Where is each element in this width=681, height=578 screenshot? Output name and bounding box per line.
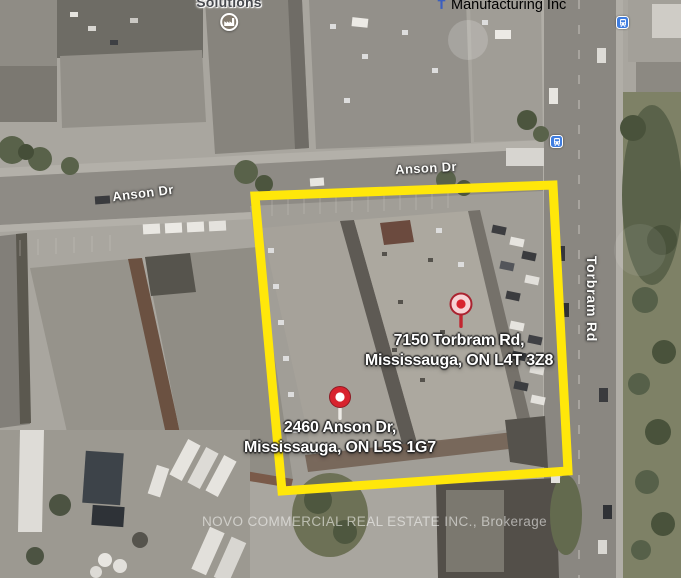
poi-solutions-label: Solutions (196, 0, 262, 10)
factory-icon (220, 13, 238, 31)
bus-stop-icon[interactable] (550, 135, 563, 148)
address-line-2: Mississauga, ON L4T 3Z8 (365, 351, 553, 371)
poi-manufacturing-label: Manufacturing Inc (451, 0, 566, 13)
bus-stop-icon[interactable] (616, 16, 629, 29)
satellite-map-canvas[interactable]: Anson Dr Anson Dr Torbram Rd Solutions M… (0, 0, 681, 578)
street-label-torbram-rd: Torbram Rd (584, 256, 600, 342)
address-line-2: Mississauga, ON L5S 1G7 (244, 438, 436, 458)
address-line-1: 7150 Torbram Rd, (365, 331, 553, 351)
street-label-anson-dr-east: Anson Dr (395, 159, 457, 177)
brokerage-watermark: NOVO COMMERCIAL REAL ESTATE INC., Broker… (202, 514, 547, 529)
poi-manufacturing[interactable]: Manufacturing Inc (436, 0, 566, 15)
address-line-1: 2460 Anson Dr, (244, 418, 436, 438)
cross-icon (436, 0, 447, 15)
pin-label-2460-anson: 2460 Anson Dr, Mississauga, ON L5S 1G7 (244, 418, 436, 457)
satellite-imagery (0, 0, 681, 578)
poi-solutions[interactable]: Solutions (196, 0, 262, 31)
pin-label-7150-torbram: 7150 Torbram Rd, Mississauga, ON L4T 3Z8 (365, 331, 553, 370)
bottom-yard (0, 430, 250, 578)
